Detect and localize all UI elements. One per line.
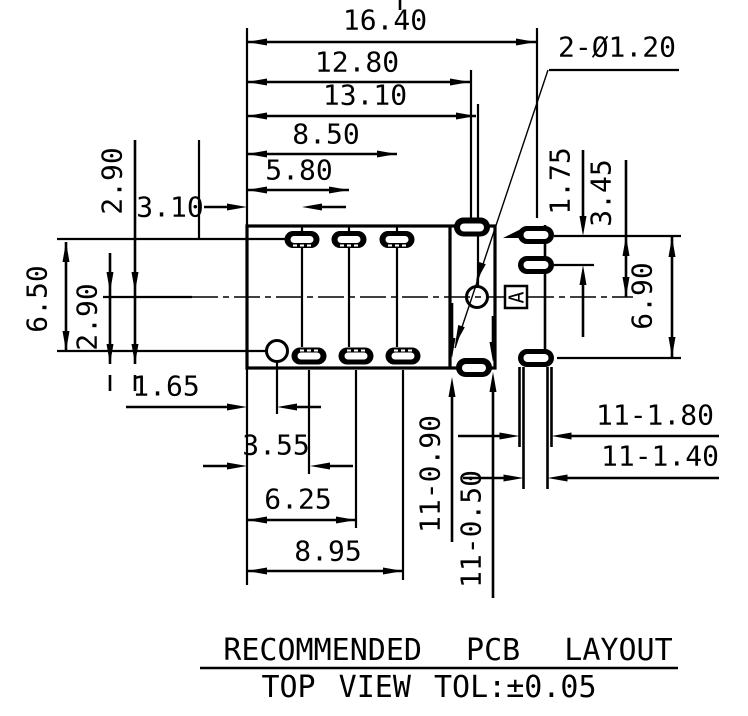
dim-text-11-0-50: 11-0.50 xyxy=(455,470,488,588)
dim-6-25 xyxy=(247,517,356,524)
dim-text-2-90-bottom: 2.90 xyxy=(71,283,104,350)
dim-text-3-10: 3.10 xyxy=(136,191,203,224)
title-block: RECOMMENDED PCB LAYOUT TOP VIEW TOL:±0.0… xyxy=(200,633,678,705)
dim-right-span xyxy=(669,237,676,357)
dim-text-13-10: 13.10 xyxy=(323,79,407,112)
dim-3-10 xyxy=(204,204,346,211)
dim-text-11-1-80: 11-1.80 xyxy=(596,399,714,432)
dim-row-offset-bottom xyxy=(107,253,114,391)
hole-left xyxy=(267,341,288,362)
dim-text-6-25: 6.25 xyxy=(264,483,331,516)
dim-13-10 xyxy=(247,113,476,120)
dim-3-55 xyxy=(203,463,353,470)
dim-text-6-90: 6.90 xyxy=(626,262,659,329)
dim-text-8-50: 8.50 xyxy=(292,118,359,151)
extension-lines xyxy=(57,28,681,585)
dim-text-8-95: 8.95 xyxy=(294,535,361,568)
dim-text-1-75: 1.75 xyxy=(544,147,577,214)
dim-text-11-0-90: 11-0.90 xyxy=(414,415,447,533)
dim-text-6-50: 6.50 xyxy=(21,265,54,332)
pcb-layout-drawing: A xyxy=(0,0,748,716)
dim-text-2-90-top: 2.90 xyxy=(96,147,129,214)
dim-text-11-1-40: 11-1.40 xyxy=(601,440,719,473)
dim-text-1-65: 1.65 xyxy=(132,370,199,403)
dim-pad-inner-width xyxy=(463,475,719,482)
dim-row-span xyxy=(63,242,70,351)
dim-8-95 xyxy=(247,568,403,575)
hole-callout-text: 2-Ø1.20 xyxy=(558,31,676,64)
dim-text-3-55: 3.55 xyxy=(242,429,309,462)
dim-overall-width xyxy=(247,39,536,46)
dim-text-12-80: 12.80 xyxy=(315,46,399,79)
dim-row-offset-top xyxy=(132,140,139,391)
datum-label: A xyxy=(505,291,529,303)
dim-text-5-80: 5.80 xyxy=(265,154,332,187)
drawing-title: RECOMMENDED PCB LAYOUT xyxy=(223,633,672,668)
dim-1-65 xyxy=(126,404,321,411)
dim-pad-outer-width xyxy=(458,433,719,440)
dim-text-3-45: 3.45 xyxy=(585,159,618,226)
drawing-subtitle: TOP VIEW TOL:±0.05 xyxy=(261,670,596,705)
datum-triangle-icon xyxy=(503,228,523,238)
dim-5-80 xyxy=(247,187,349,194)
drawing-canvas: A xyxy=(0,0,748,716)
dim-text-16-40: 16.40 xyxy=(343,4,427,37)
